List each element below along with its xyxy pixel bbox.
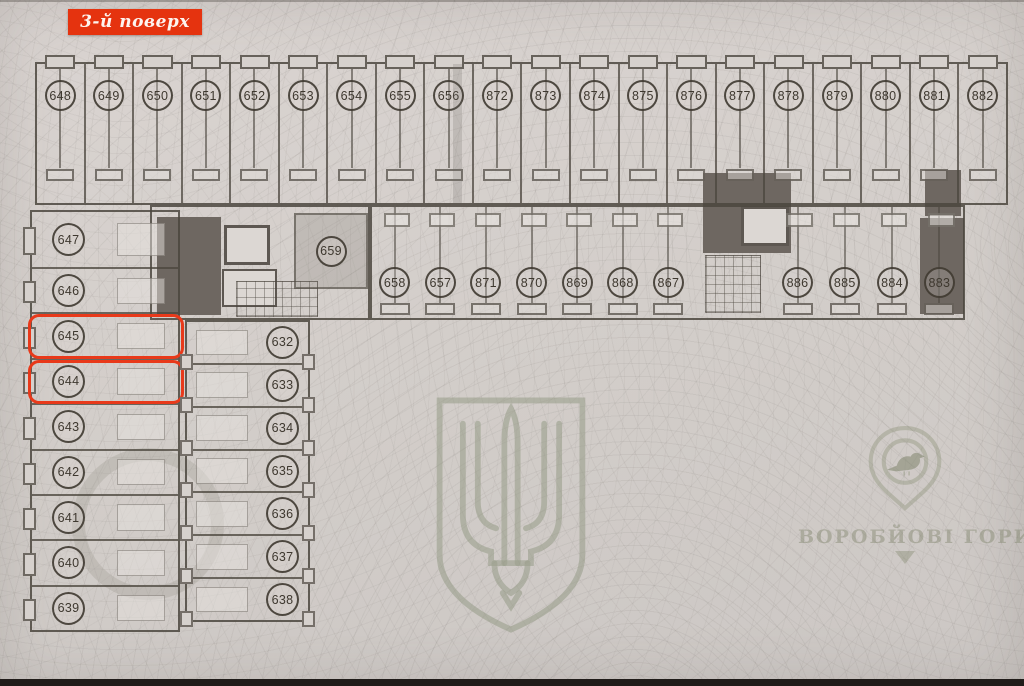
furniture-block [117,223,165,256]
room-number-circle: 638 [266,583,299,616]
room-cell: 652 [231,64,280,203]
room-row: 643 [32,405,178,450]
left-room-column: 647 646 645 644 [30,210,180,632]
room-row: 647 [32,212,178,269]
floor-label-text: 3-й поверх [80,12,190,32]
section-divider [453,64,462,203]
room-cell: 870 [509,207,555,318]
room-cell: 876 [668,64,717,203]
room-cell: 886 [774,207,821,318]
room-number-circle: 879 [822,80,853,111]
room-number-circle: 635 [266,455,299,488]
room-cell: 882 [959,64,1006,203]
top-room-band: 648 649 650 651 652 653 [35,62,1008,205]
room-cell: 648 [37,64,86,203]
room-cell: 874 [571,64,620,203]
room-cell: 867 [646,207,692,318]
room-cell: 885 [821,207,868,318]
furniture-block [196,415,248,441]
photo-edge-bottom [0,679,1024,686]
furniture-block [196,372,248,398]
room-cell: 881 [911,64,960,203]
room-cell: 653 [280,64,329,203]
room-number-circle: 877 [724,80,755,111]
furniture-block [117,323,165,349]
room-number-circle: 875 [627,80,658,111]
room-number-circle: 636 [266,497,299,530]
stair-gap [691,207,774,318]
room-cell: 875 [620,64,669,203]
room-cell: 880 [862,64,911,203]
room-number-circle: 643 [52,410,85,443]
room-number-circle: 870 [516,267,547,298]
room-number-circle: 641 [52,501,85,534]
room-cell: 654 [328,64,377,203]
room-cell: 651 [183,64,232,203]
room-row: 641 [32,496,178,541]
furniture-block [196,458,248,484]
floor-label-badge: 3-й поверх [68,9,202,35]
room-number-circle: 872 [482,80,513,111]
scanned-floorplan-photo: ВОРОБЙОВІ ГОРИ 3-й поверх 648 649 [0,0,1024,686]
second-row-right-group: 886 885 884 883 [774,207,963,318]
room-number-circle: 867 [653,267,684,298]
second-row-left-group: 658 657 871 870 869 [372,207,691,318]
furniture-block [117,414,165,440]
room-cell: 656 [425,64,474,203]
furniture-block [117,368,165,394]
room-number-circle: 647 [52,223,85,256]
room-row: 639 [32,587,178,630]
room-number-circle: 632 [266,326,299,359]
room-cell: 650 [134,64,183,203]
room-row: 632 [187,322,308,365]
room-number-circle: 885 [829,267,860,298]
room-cell: 657 [418,207,464,318]
room-number-circle: 648 [45,80,76,111]
room-cell: 868 [600,207,646,318]
room-number-circle: 886 [782,267,813,298]
room-number-circle: 871 [470,267,501,298]
room-number-circle: 876 [676,80,707,111]
room-number-circle: 650 [142,80,173,111]
room-number-circle: 645 [52,320,85,353]
furniture-block [117,504,165,530]
room-row: 642 [32,451,178,496]
room-number-circle: 653 [288,80,319,111]
room-row: 640 [32,541,178,586]
room-cell: 872 [474,64,523,203]
room-number-circle: 652 [239,80,270,111]
furniture-block [196,501,248,527]
room-number-circle: 651 [190,80,221,111]
room-number-circle: 883 [924,267,955,298]
room-number-circle: 881 [919,80,950,111]
room-cell: 649 [86,64,135,203]
room-cell: 884 [868,207,915,318]
room-row: 645 [32,314,178,359]
room-number-circle: 640 [52,546,85,579]
room-number-circle: 880 [870,80,901,111]
elevator-box-left [224,225,270,265]
room-number-circle: 646 [52,274,85,307]
room-number-circle: 874 [579,80,610,111]
furniture-block [196,330,248,356]
room-number-circle: 873 [530,80,561,111]
room-row: 636 [187,493,308,536]
room-number-circle: 644 [52,365,85,398]
room-cell: 873 [522,64,571,203]
room-cell: 879 [814,64,863,203]
furniture-block [117,278,165,304]
room-cell: 871 [463,207,509,318]
furniture-block [196,544,248,570]
room-number-circle: 634 [266,412,299,445]
room-number-circle: 654 [336,80,367,111]
room-row: 635 [187,451,308,494]
room-cell: 878 [765,64,814,203]
room-row: 633 [187,365,308,408]
furniture-block [117,550,165,576]
room-number-circle: 659 [316,236,347,267]
room-row: 646 [32,269,178,314]
room-row: 638 [187,579,308,620]
room-number-circle: 882 [967,80,998,111]
room-number-circle: 884 [877,267,908,298]
room-659: 659 [294,213,368,289]
room-number-circle: 655 [385,80,416,111]
room-number-circle: 657 [425,267,456,298]
middle-room-column: 632 633 634 635 [185,320,310,622]
second-room-band: 658 657 871 870 869 [370,205,965,320]
room-cell: 877 [717,64,766,203]
stair-core: 659 [150,205,370,320]
room-number-circle: 649 [93,80,124,111]
room-number-circle: 658 [379,267,410,298]
room-row: 637 [187,536,308,579]
room-number-circle: 869 [562,267,593,298]
room-row: 634 [187,408,308,451]
photo-edge-top [0,0,1024,2]
room-number-circle: 633 [266,369,299,402]
room-cell: 883 [916,207,963,318]
room-number-circle: 639 [52,592,85,625]
floor-plan: 648 649 650 651 652 653 [0,0,1024,686]
room-number-circle: 868 [607,267,638,298]
room-cell: 658 [372,207,418,318]
room-row: 644 [32,360,178,405]
room-cell: 869 [554,207,600,318]
room-number-circle: 637 [266,540,299,573]
furniture-block [196,587,248,613]
room-cell: 655 [377,64,426,203]
furniture-block [117,595,165,621]
room-number-circle: 642 [52,456,85,489]
furniture-block [117,459,165,485]
room-number-circle: 878 [773,80,804,111]
